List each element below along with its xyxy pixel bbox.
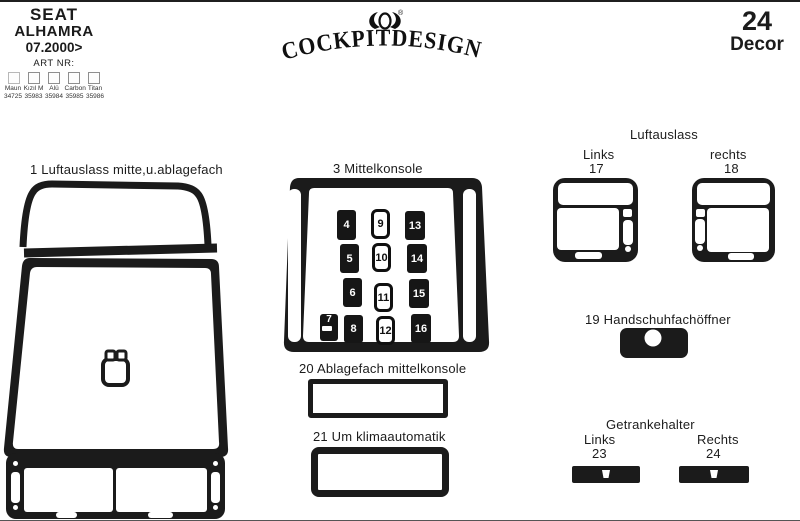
knob-detail-left — [106, 351, 115, 360]
console-button-label: 11 — [378, 292, 390, 304]
console-left-rail — [288, 189, 301, 342]
registered-mark: ® — [398, 9, 404, 17]
part22-lower-tray-shape — [6, 453, 225, 519]
console-button-label: 13 — [409, 220, 421, 232]
part20-ablagefach-shape — [308, 379, 448, 418]
console-button-11: 11 — [374, 283, 393, 312]
cupholder-23-shape — [572, 466, 640, 483]
console-button-13: 13 — [405, 211, 425, 240]
console-button-4: 4 — [337, 210, 356, 240]
trim-cross-band — [24, 248, 217, 253]
sheet: { "header": { "brand_line1": "SEAT", "br… — [0, 0, 800, 521]
vent-18-shape — [692, 178, 775, 262]
console-button-14: 14 — [407, 244, 427, 273]
console-right-rail — [463, 189, 476, 342]
console-button-16: 16 — [411, 314, 431, 343]
part21-klimaautomatik-shape — [311, 447, 449, 497]
vent-17-shape — [553, 178, 638, 262]
console-button-label: 7 — [326, 314, 332, 325]
console-button-5: 5 — [340, 244, 359, 273]
console-button-12: 12 — [376, 316, 395, 345]
cockpitdesign-logo: COCKPITDESIGN ® — [279, 9, 486, 66]
console-button-label: 9 — [377, 218, 383, 230]
console-button-15: 15 — [409, 279, 429, 308]
part19-handschuhfach-shape — [620, 328, 688, 358]
console-button-label: 12 — [379, 325, 391, 337]
button-slot — [322, 326, 332, 331]
console-button-8: 8 — [344, 315, 363, 343]
console-button-label: 4 — [343, 219, 349, 231]
knob-detail-right — [117, 351, 126, 360]
headlight-level-knob — [103, 359, 128, 385]
vent-top-arc — [23, 184, 208, 247]
diagram-canvas: COCKPITDESIGN ® — [0, 0, 800, 521]
console-button-9: 9 — [371, 209, 390, 239]
console-button-7: 7 — [320, 314, 338, 341]
console-button-label: 5 — [346, 253, 352, 265]
console-button-label: 15 — [413, 288, 425, 300]
cupholder-24-shape — [679, 466, 749, 483]
console-button-6: 6 — [343, 278, 362, 307]
console-button-label: 6 — [349, 287, 355, 299]
console-button-label: 16 — [415, 323, 427, 335]
svg-text:COCKPITDESIGN: COCKPITDESIGN — [279, 25, 484, 65]
console-button-label: 14 — [411, 253, 423, 265]
console-button-label: 10 — [375, 252, 387, 264]
logo-text: COCKPITDESIGN — [279, 25, 484, 65]
console-button-10: 10 — [372, 243, 391, 272]
part1-luftauslass-mitte-shape — [4, 184, 228, 519]
console-button-label: 8 — [350, 323, 356, 335]
